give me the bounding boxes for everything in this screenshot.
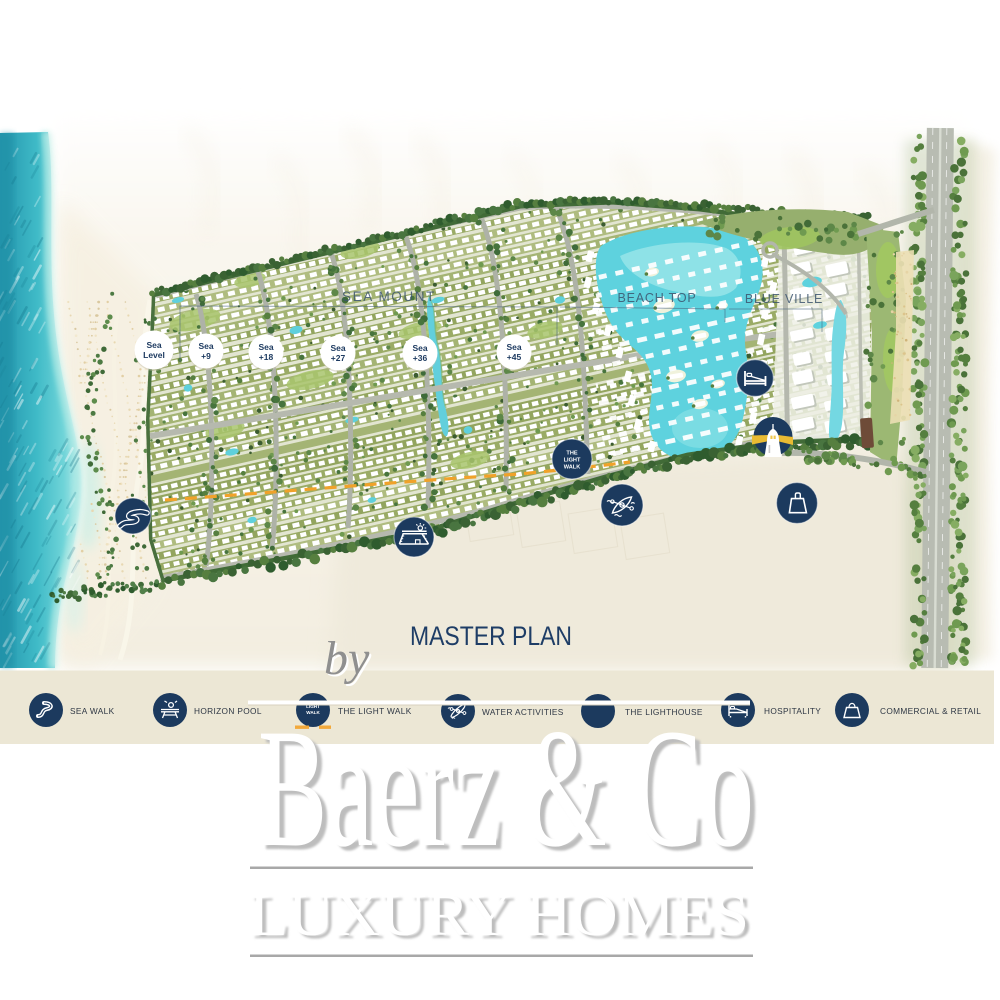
svg-text:Sea: Sea bbox=[506, 342, 521, 352]
svg-text:HOSPITALITY: HOSPITALITY bbox=[764, 706, 821, 716]
svg-text:+36: +36 bbox=[413, 353, 428, 363]
svg-text:WALK: WALK bbox=[564, 465, 580, 471]
svg-text:MASTER PLAN: MASTER PLAN bbox=[410, 621, 572, 651]
svg-text:Sea: Sea bbox=[258, 342, 273, 352]
svg-text:Sea: Sea bbox=[198, 341, 213, 351]
svg-text:SEA WALK: SEA WALK bbox=[70, 706, 115, 716]
svg-text:THE: THE bbox=[566, 451, 577, 457]
svg-text:Sea: Sea bbox=[330, 343, 345, 353]
svg-text:LUXURY HOMES: LUXURY HOMES bbox=[249, 882, 749, 948]
svg-text:COMMERCIAL & RETAIL: COMMERCIAL & RETAIL bbox=[880, 706, 981, 716]
svg-text:by: by bbox=[324, 632, 370, 685]
svg-text:+9: +9 bbox=[201, 351, 211, 361]
svg-text:Baerz & Co: Baerz & Co bbox=[258, 694, 754, 882]
svg-text:BEACH TOP: BEACH TOP bbox=[618, 291, 697, 305]
svg-text:Sea: Sea bbox=[412, 343, 427, 353]
svg-text:Sea: Sea bbox=[146, 340, 161, 350]
svg-text:+27: +27 bbox=[331, 353, 346, 363]
svg-text:LIGHT: LIGHT bbox=[564, 458, 581, 464]
svg-text:Level: Level bbox=[143, 350, 165, 360]
svg-text:SEA MOUNT: SEA MOUNT bbox=[342, 289, 436, 304]
svg-text:+18: +18 bbox=[259, 352, 274, 362]
svg-text:HORIZON POOL: HORIZON POOL bbox=[194, 706, 262, 716]
svg-text:BLUE VILLE: BLUE VILLE bbox=[745, 292, 823, 306]
svg-text:+45: +45 bbox=[507, 352, 522, 362]
